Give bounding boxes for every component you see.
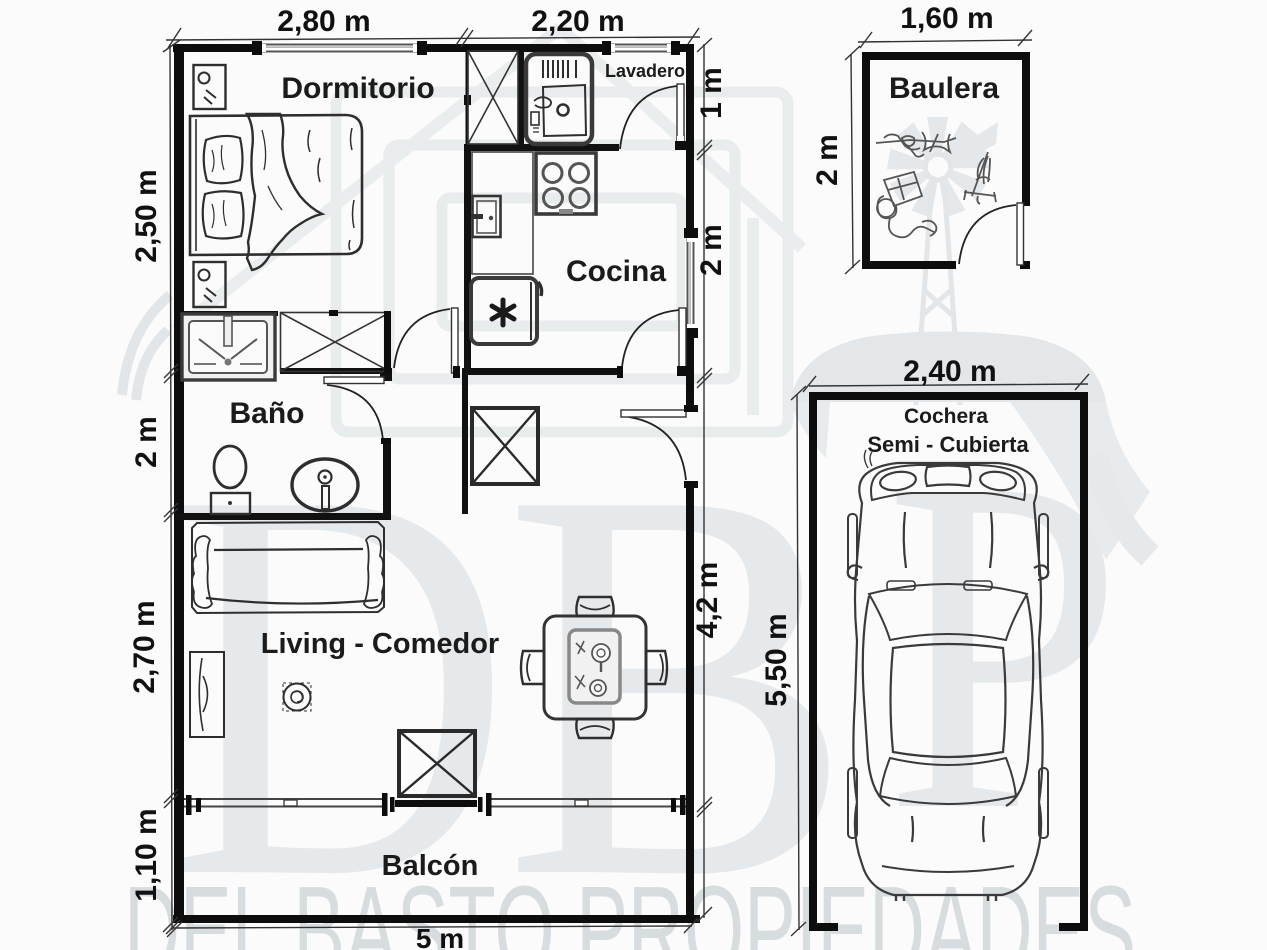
svg-text:2,40 m: 2,40 m (903, 355, 996, 388)
svg-text:DEL BASTO PROPIEDADES: DEL BASTO PROPIEDADES (124, 860, 1136, 950)
svg-text:1 m: 1 m (695, 67, 728, 119)
svg-text:4,2 m: 4,2 m (691, 562, 724, 639)
svg-text:Baño: Baño (230, 397, 305, 430)
svg-text:Cocina: Cocina (566, 255, 666, 288)
svg-text:2,80 m: 2,80 m (277, 5, 370, 38)
svg-text:2 m: 2 m (130, 416, 163, 468)
svg-text:2,50 m: 2,50 m (130, 169, 163, 262)
svg-text:5,50 m: 5,50 m (760, 613, 793, 706)
svg-text:Living - Comedor: Living - Comedor (261, 628, 499, 660)
svg-text:1,10 m: 1,10 m (130, 808, 163, 901)
svg-text:5 m: 5 m (416, 923, 464, 950)
svg-text:2,20 m: 2,20 m (531, 5, 624, 38)
svg-text:Dormitorio: Dormitorio (281, 72, 434, 105)
svg-text:2 m: 2 m (695, 224, 728, 276)
svg-text:Semi - Cubierta: Semi - Cubierta (867, 432, 1029, 457)
svg-text:Cochera: Cochera (904, 405, 988, 428)
svg-text:2,70 m: 2,70 m (128, 600, 161, 693)
svg-text:2 m: 2 m (811, 134, 844, 186)
svg-text:Baulera: Baulera (889, 72, 999, 105)
svg-text:Lavadero: Lavadero (605, 61, 685, 81)
svg-text:Balcón: Balcón (382, 850, 479, 882)
svg-text:1,60 m: 1,60 m (900, 2, 993, 35)
